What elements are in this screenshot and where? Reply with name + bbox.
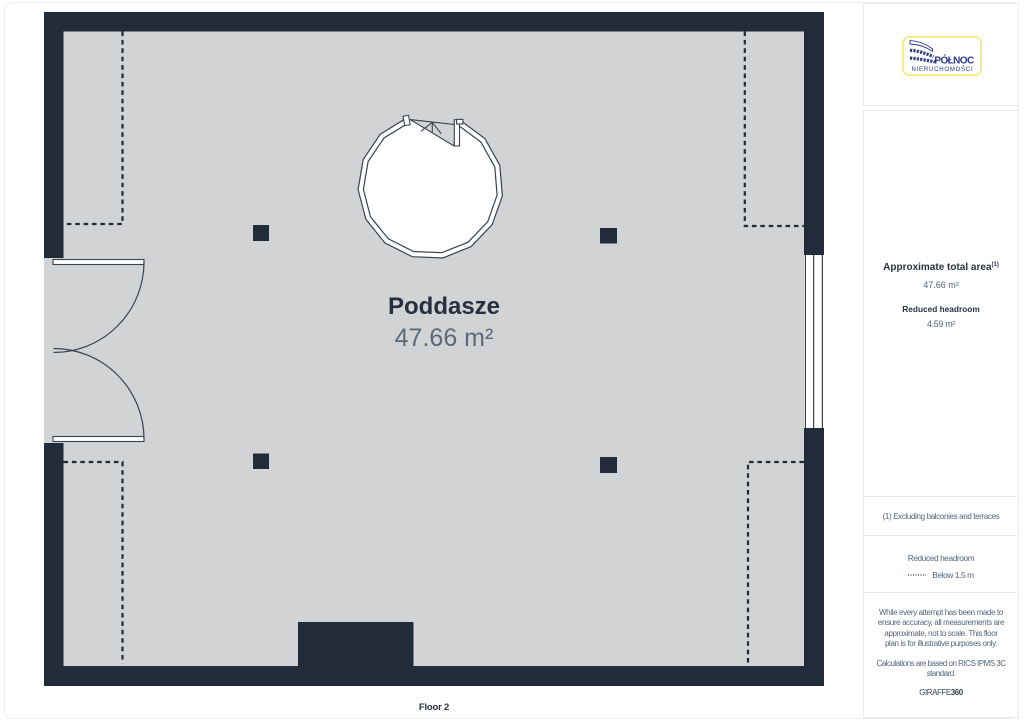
svg-text:NIERUCHOMOŚCI: NIERUCHOMOŚCI bbox=[911, 65, 973, 73]
svg-text:PÓŁNOC: PÓŁNOC bbox=[934, 53, 974, 66]
